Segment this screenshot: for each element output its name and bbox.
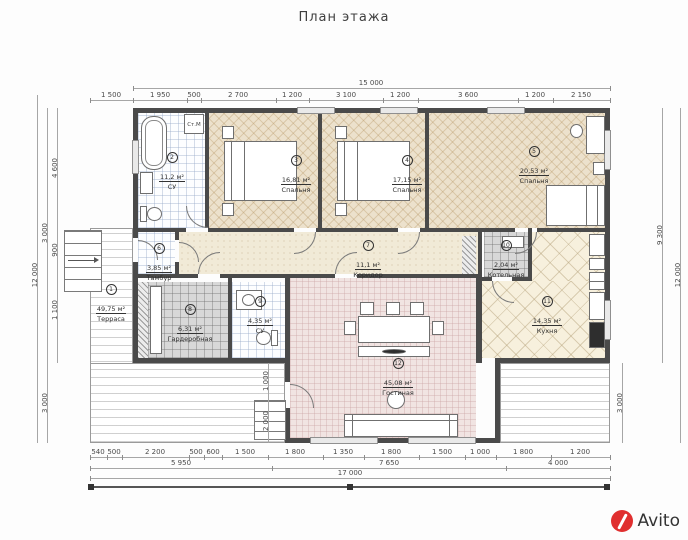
sofa-back-line — [345, 420, 457, 421]
dimension-label: 500 — [187, 91, 200, 99]
avito-logo-icon — [611, 510, 633, 532]
dimension-tick — [419, 455, 420, 460]
room-label-bedroom2: 4 17,15 м² Спальня — [379, 155, 435, 194]
dining-table — [358, 316, 430, 343]
watermark: Avito — [611, 510, 680, 532]
desk — [586, 116, 605, 154]
dimension-label: 15 000 — [359, 79, 384, 87]
dimension-line — [57, 108, 58, 363]
dimension-label: 3 000 — [616, 393, 624, 413]
dimension-label: 1 350 — [333, 448, 353, 456]
room-number: 3 — [291, 155, 302, 166]
dimension-tick — [133, 86, 134, 91]
dimension-tick — [496, 455, 497, 460]
stairs-arrow-head — [94, 257, 99, 263]
room-number: 1 — [106, 284, 117, 295]
stove — [589, 322, 605, 348]
dimension-tick — [506, 466, 507, 471]
deck-steps — [254, 400, 286, 440]
dimension-line — [90, 100, 610, 101]
living-kitchen-wall — [476, 278, 482, 363]
room-label-bedroom3: 5 20,53 м² Спальня — [506, 146, 562, 185]
corridor-top-wall — [208, 228, 294, 232]
window-kitchen — [604, 300, 611, 340]
dimension-tick — [309, 98, 310, 103]
room-name: СУ — [232, 327, 288, 335]
window-bedroom3-right — [604, 130, 611, 170]
nightstand — [222, 126, 234, 139]
room-area: 4,35 м² — [247, 317, 273, 326]
dimension-label: 500 — [189, 448, 202, 456]
dimension-label: 3 100 — [336, 91, 356, 99]
room-label-wardrobe: 8 6,31 м² Гардеробная — [162, 304, 218, 343]
room-area: 20,53 м² — [519, 167, 549, 176]
bed-pillow-line — [244, 142, 245, 200]
nightstand — [222, 203, 234, 216]
room-number: 6 — [154, 243, 165, 254]
room-area: 45,08 м² — [383, 379, 413, 388]
corridor-top-wall — [537, 228, 605, 232]
room-name: Коридор — [340, 271, 396, 279]
window-bedroom3 — [487, 107, 525, 114]
living-wall-right — [495, 358, 500, 443]
page-title: План этажа — [0, 10, 688, 25]
dimension-label: 1 800 — [285, 448, 305, 456]
wall-south-right — [500, 358, 610, 363]
room-label-terrace: 1 49,75 м² Терраса — [83, 284, 139, 323]
dimension-tick — [610, 466, 611, 471]
window-bedroom2 — [380, 107, 418, 114]
room-area: 16,81 м² — [281, 176, 311, 185]
dimension-label: 1 200 — [570, 448, 590, 456]
dimension-label: 1 000 — [262, 371, 270, 391]
dimension-line — [90, 457, 610, 458]
room-name: Терраса — [83, 315, 139, 323]
corridor-top-wall — [316, 228, 398, 232]
watermark-text: Avito — [638, 511, 680, 531]
room-label-tambur: 6 3,85 м² Тамбур — [131, 243, 187, 282]
kitchen-sink-divider — [590, 281, 604, 282]
room-area: 49,75 м² — [96, 305, 126, 314]
corridor-floor — [179, 232, 480, 274]
dimension-tick — [610, 98, 611, 103]
room-number: 11 — [542, 296, 553, 307]
dimension-tick — [364, 455, 365, 460]
sofa — [344, 414, 458, 437]
dimension-label: 540 — [91, 448, 104, 456]
room-name: Гостиная — [370, 389, 426, 397]
dimension-label: 1 800 — [381, 448, 401, 456]
dimension-tick — [90, 476, 91, 481]
dimension-label: 5 950 — [171, 459, 191, 467]
dining-chair — [360, 302, 374, 315]
room-name: Гардеробная — [162, 335, 218, 343]
window-bath1 — [132, 140, 139, 174]
dimension-tick — [268, 455, 269, 460]
dimension-label: 1 200 — [525, 91, 545, 99]
room-name: Спальня — [506, 177, 562, 185]
room-name: Тамбур — [131, 274, 187, 282]
dining-chair — [344, 321, 356, 335]
dimension-tick — [222, 455, 223, 460]
dimension-label: 2 200 — [145, 448, 165, 456]
dimension-label: 9 300 — [656, 225, 664, 245]
stairs-arrow — [68, 260, 94, 261]
avito-logo-slash — [617, 513, 628, 529]
dimension-label: 7 650 — [379, 459, 399, 467]
room-label-bedroom1: 3 16,81 м² Спальня — [268, 155, 324, 194]
dimension-label: 3 600 — [458, 91, 478, 99]
dining-chair — [410, 302, 424, 315]
dimension-tick — [90, 466, 91, 471]
nightstand — [593, 162, 605, 175]
bed-pillow-line — [357, 142, 358, 200]
dimension-label: 1 500 — [235, 448, 255, 456]
dimension-label: 500 — [107, 448, 120, 456]
room-area: 14,35 м² — [532, 317, 562, 326]
dimension-tick — [610, 455, 611, 460]
dimension-label: 12 000 — [31, 263, 39, 288]
room-name: Спальня — [268, 186, 324, 194]
room-label-bath1: 2 11,2 м² СУ — [144, 152, 200, 191]
dimension-tick — [610, 86, 611, 91]
desk-chair — [570, 124, 583, 138]
bed — [546, 185, 598, 226]
footing-marker — [347, 484, 353, 490]
dimension-label: 1 500 — [432, 448, 452, 456]
toilet-tank — [140, 206, 147, 222]
dimension-label: 12 000 — [674, 263, 682, 288]
washing-machine: Ст.М — [184, 114, 204, 134]
corridor-bottom-wall — [220, 274, 335, 278]
sofa-arm-line — [449, 415, 450, 436]
room-number: 12 — [393, 358, 404, 369]
room-label-living: 12 45,08 м² Гостиная — [370, 358, 426, 397]
floor-plan-page: План этажа — [0, 0, 688, 540]
dimension-tick — [323, 455, 324, 460]
room-name: Спальня — [379, 186, 435, 194]
dimension-tick — [418, 98, 419, 103]
shaft-hatch-2 — [462, 236, 476, 274]
dimension-label: 600 — [206, 448, 219, 456]
dimension-label: 1 800 — [513, 448, 533, 456]
dimension-label: 900 — [51, 243, 59, 256]
room-number: 8 — [185, 304, 196, 315]
dimension-label: 2 150 — [571, 91, 591, 99]
dimension-tick — [610, 476, 611, 481]
dimension-tick — [518, 98, 519, 103]
dimension-tick — [204, 455, 205, 460]
dimension-tick — [465, 455, 466, 460]
dining-chair — [386, 302, 400, 315]
washer-label: Ст.М — [187, 122, 201, 128]
corridor-top-wall — [420, 228, 515, 232]
dimension-tick — [272, 466, 273, 471]
sofa-arm-line — [352, 415, 353, 436]
toilet-bowl — [147, 207, 162, 221]
room-area: 3,85 м² — [146, 264, 172, 273]
room-name: Кухня — [519, 327, 575, 335]
terrace-bottom-right-deck — [500, 363, 610, 443]
room-area: 2,04 м² — [493, 261, 519, 270]
nightstand — [335, 126, 347, 139]
tv-screen — [382, 349, 406, 354]
room-number: 9 — [255, 296, 266, 307]
room-area: 11,1 м² — [355, 261, 381, 270]
dimension-tick — [122, 455, 123, 460]
dimension-label: 4 600 — [51, 158, 59, 178]
dimension-tick — [201, 98, 202, 103]
footing-marker — [88, 484, 94, 490]
dimension-tick — [276, 98, 277, 103]
shelf — [150, 286, 162, 354]
room-label-bath2: 9 4,35 м² СУ — [232, 296, 288, 335]
dimension-line — [133, 88, 610, 89]
room-label-kitchen: 11 14,35 м² Кухня — [519, 296, 575, 335]
dimension-label: 1 200 — [390, 91, 410, 99]
counter — [589, 292, 605, 320]
window-living-right — [408, 437, 476, 444]
room-label-corridor: 7 11,1 м² Коридор — [340, 240, 396, 279]
wall-south-left — [133, 358, 285, 363]
bed-pillow-line — [586, 186, 587, 225]
fridge — [589, 234, 605, 256]
dimension-label: 1 200 — [282, 91, 302, 99]
dimension-label: 2 000 — [262, 411, 270, 431]
room-number: 10 — [501, 240, 512, 251]
room-area: 6,31 м² — [177, 325, 203, 334]
dimension-label: 3 000 — [41, 393, 49, 413]
room-label-boiler: 10 2,04 м² Котельная — [478, 240, 534, 279]
room-name: СУ — [144, 183, 200, 191]
counter — [589, 258, 605, 270]
dimension-label: 1 000 — [470, 448, 490, 456]
room-area: 11,2 м² — [159, 173, 185, 182]
dimension-label: 4 000 — [548, 459, 568, 467]
dimension-label: 2 700 — [228, 91, 248, 99]
room-name: Котельная — [478, 271, 534, 279]
footing-marker — [604, 484, 610, 490]
room-area: 17,15 м² — [392, 176, 422, 185]
dimension-label: 17 000 — [338, 469, 363, 477]
dimension-tick — [383, 98, 384, 103]
dimension-tick — [553, 98, 554, 103]
room-number: 2 — [167, 152, 178, 163]
room-number: 7 — [363, 240, 374, 251]
bed-headboard — [597, 185, 605, 226]
room-number: 5 — [529, 146, 540, 157]
tambur-right-wall — [175, 232, 179, 240]
shaft-hatch — [138, 282, 148, 358]
dimension-tick — [133, 98, 134, 103]
dimension-label: 1 950 — [150, 91, 170, 99]
dimension-tick — [90, 98, 91, 103]
window-living-left — [310, 437, 378, 444]
window-bedroom1 — [297, 107, 335, 114]
dimension-label: 1 100 — [51, 300, 59, 320]
dimension-line — [90, 478, 610, 479]
dimension-label: 1 500 — [101, 91, 121, 99]
dining-chair — [432, 321, 444, 335]
dimension-label: 3 000 — [41, 223, 49, 243]
room-number: 4 — [402, 155, 413, 166]
nightstand — [335, 203, 347, 216]
